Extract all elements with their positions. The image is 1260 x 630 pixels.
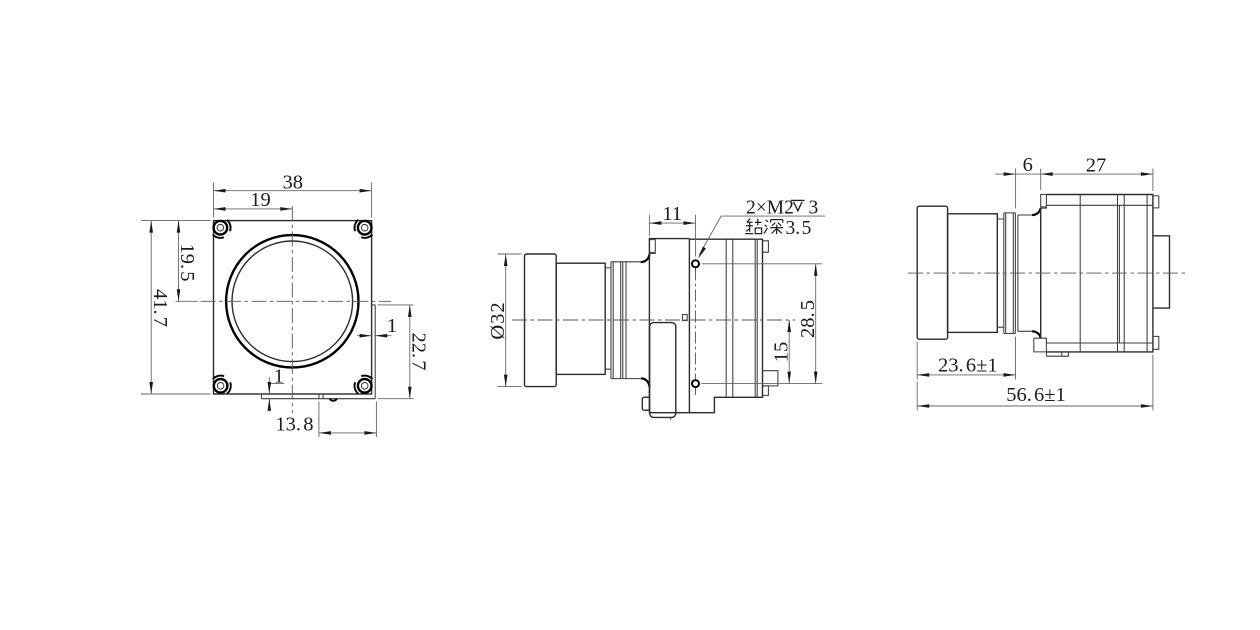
svg-text:1: 1	[274, 366, 284, 388]
svg-text:13.8: 13.8	[275, 413, 313, 435]
svg-text:56.6±1: 56.6±1	[1006, 384, 1066, 406]
svg-text:19.5: 19.5	[176, 243, 198, 281]
svg-text:38: 38	[283, 172, 304, 194]
svg-text:2×M2: 2×M2	[746, 198, 794, 219]
svg-text:11: 11	[662, 203, 682, 225]
svg-text:22.7: 22.7	[407, 332, 429, 370]
svg-text:3.5: 3.5	[786, 218, 812, 239]
svg-text:1: 1	[387, 315, 397, 337]
svg-text:23.6±1: 23.6±1	[938, 355, 998, 377]
svg-text:3: 3	[809, 198, 819, 219]
svg-text:6: 6	[1023, 154, 1033, 176]
svg-text:27: 27	[1086, 154, 1107, 176]
svg-text:15: 15	[771, 342, 793, 363]
svg-text:Ø32: Ø32	[487, 301, 509, 339]
svg-text:19: 19	[250, 189, 271, 211]
svg-text:28.5: 28.5	[797, 300, 819, 338]
svg-text:41.7: 41.7	[149, 289, 171, 327]
